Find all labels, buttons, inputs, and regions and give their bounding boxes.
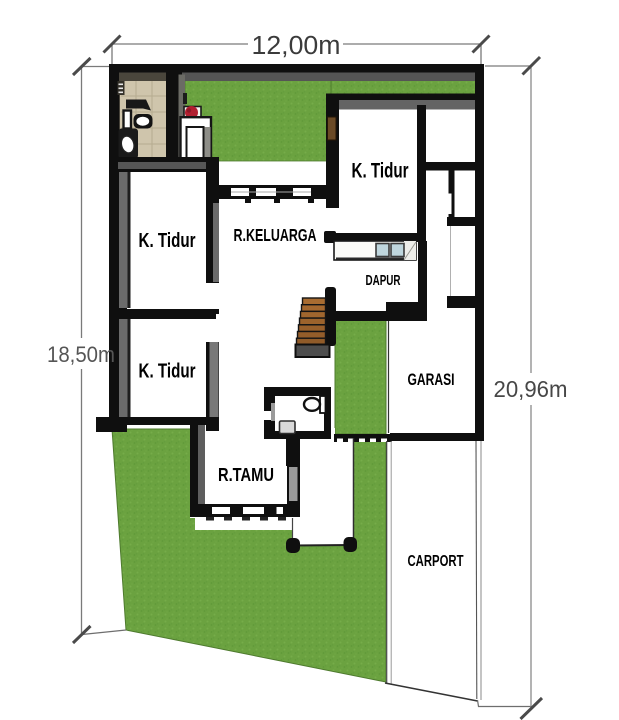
svg-text:DAPUR: DAPUR bbox=[366, 272, 401, 289]
svg-text:R.TAMU: R.TAMU bbox=[218, 464, 274, 485]
svg-text:18,50m: 18,50m bbox=[47, 342, 115, 367]
svg-text:12,00m: 12,00m bbox=[252, 32, 341, 60]
svg-text:20,96m: 20,96m bbox=[494, 376, 568, 402]
svg-text:R.KELUARGA: R.KELUARGA bbox=[234, 225, 317, 245]
svg-text:GARASI: GARASI bbox=[408, 370, 455, 389]
svg-text:K. Tidur: K. Tidur bbox=[139, 230, 196, 252]
svg-text:K. Tidur: K. Tidur bbox=[139, 361, 196, 383]
svg-text:CARPORT: CARPORT bbox=[408, 553, 464, 570]
svg-text:K. Tidur: K. Tidur bbox=[352, 160, 409, 183]
